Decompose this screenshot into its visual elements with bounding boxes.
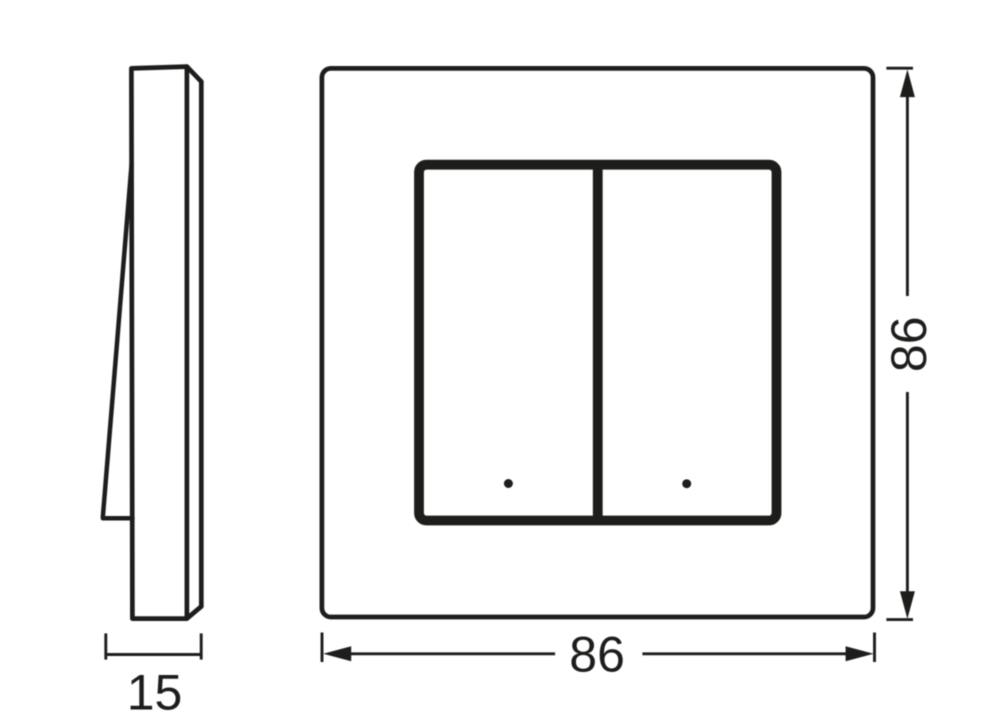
svg-text:15: 15 <box>127 665 183 721</box>
svg-text:86: 86 <box>569 627 625 683</box>
svg-text:86: 86 <box>881 316 937 372</box>
